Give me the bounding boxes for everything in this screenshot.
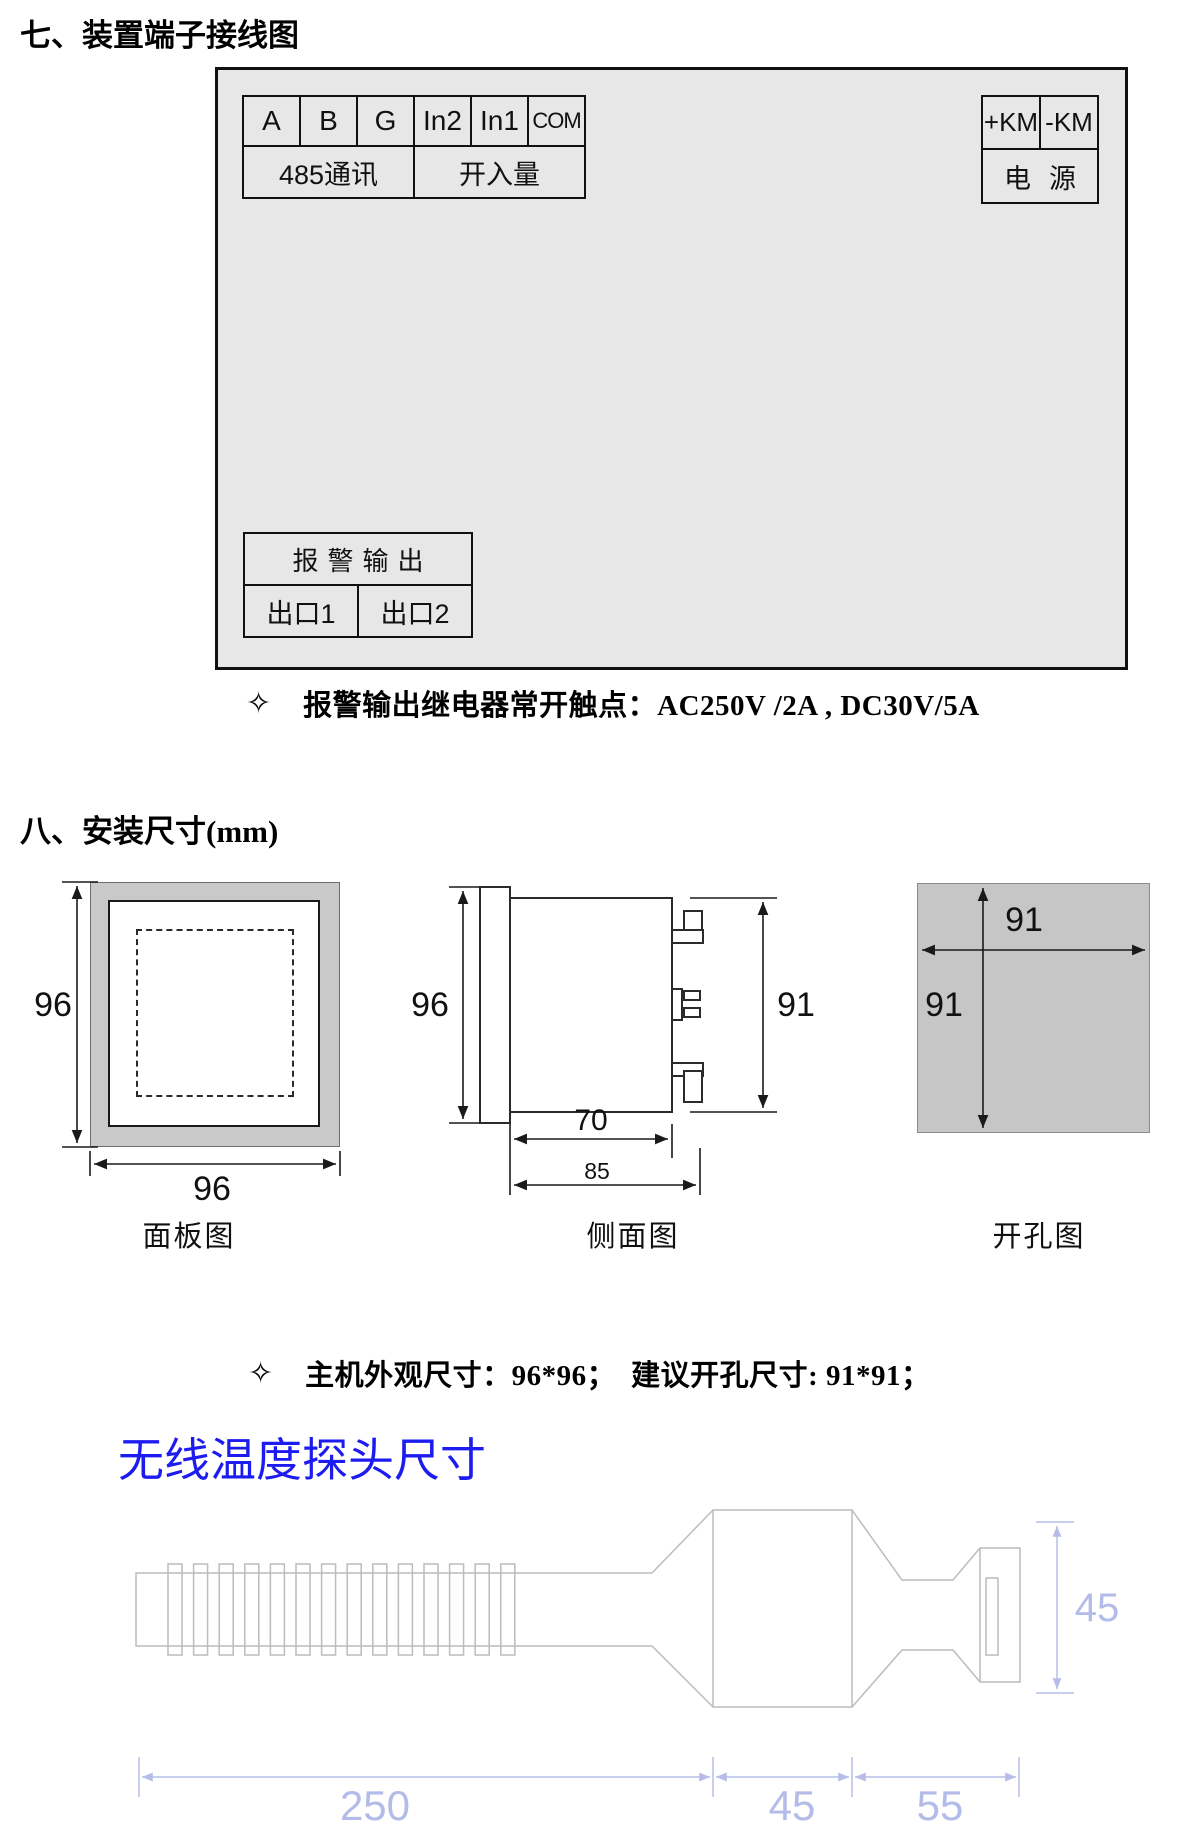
group-digital-input: 开入量 — [415, 147, 584, 197]
probe-dimensions — [139, 1522, 1074, 1797]
terminal-b: B — [301, 97, 356, 145]
panel-display-dashed-rect — [136, 929, 294, 1097]
side-view-dimensions — [449, 887, 777, 1195]
side-right-height-dim: 91 — [770, 986, 822, 1025]
terminal-com: COM — [529, 97, 584, 145]
manual-page: 七、装置端子接线图 A B G In2 In1 COM 485通讯 开入量 +K… — [0, 0, 1200, 1845]
probe-height-dim: 45 — [1062, 1586, 1132, 1631]
dimension-note: ✧ 主机外观尺寸：96*96； 建议开孔尺寸: 91*91； — [248, 1352, 931, 1394]
terminal-in2: In2 — [415, 97, 470, 145]
side-depth-70-dim: 70 — [562, 1104, 620, 1138]
section8-heading: 八、安装尺寸(mm) — [20, 806, 278, 851]
terminal-a: A — [244, 97, 299, 145]
panel-height-dim: 96 — [28, 986, 78, 1025]
side-view-drawing — [480, 887, 703, 1123]
panel-caption: 面板图 — [134, 1213, 244, 1255]
alarm-outlet-1: 出口1 — [245, 586, 357, 636]
alarm-relay-note: ✧ 报警输出继电器常开触点：AC250V /2A , DC30V/5A — [246, 682, 980, 724]
alarm-header: 报警输出 — [245, 534, 471, 584]
side-height-dim: 96 — [402, 986, 458, 1025]
probe-drawing — [136, 1510, 1020, 1707]
probe-mid-dim: 45 — [752, 1782, 832, 1830]
cutout-height-dim: 91 — [916, 986, 972, 1025]
side-depth-85-dim: 85 — [576, 1158, 618, 1185]
terminal-g: G — [358, 97, 413, 145]
terminal-in1: In1 — [472, 97, 527, 145]
probe-head-dim: 55 — [900, 1782, 980, 1830]
probe-section-heading: 无线温度探头尺寸 — [118, 1424, 486, 1490]
comm-terminal-table: A B G In2 In1 COM 485通讯 开入量 — [242, 95, 586, 199]
diamond-bullet-icon: ✧ — [248, 1356, 273, 1391]
side-caption: 侧面图 — [578, 1213, 688, 1255]
probe-length-dim: 250 — [325, 1782, 425, 1830]
power-label: 电源 — [983, 150, 1097, 202]
cutout-width-dim: 91 — [996, 901, 1052, 940]
group-485-comm: 485通讯 — [244, 147, 413, 197]
alarm-relay-note-text: 报警输出继电器常开触点：AC250V /2A , DC30V/5A — [303, 682, 980, 724]
cutout-caption: 开孔图 — [984, 1213, 1094, 1255]
alarm-output-table: 报警输出 出口1 出口2 — [243, 532, 473, 638]
diamond-bullet-icon: ✧ — [246, 686, 271, 721]
power-terminal-table: +KM -KM 电源 — [981, 95, 1099, 204]
alarm-outlet-2: 出口2 — [359, 586, 471, 636]
panel-width-dim: 96 — [186, 1170, 238, 1209]
section7-heading: 七、装置端子接线图 — [20, 10, 299, 55]
dimension-note-text: 主机外观尺寸：96*96； 建议开孔尺寸: 91*91； — [305, 1352, 930, 1394]
terminal-km-minus: -KM — [1041, 97, 1097, 148]
terminal-km-plus: +KM — [983, 97, 1039, 148]
